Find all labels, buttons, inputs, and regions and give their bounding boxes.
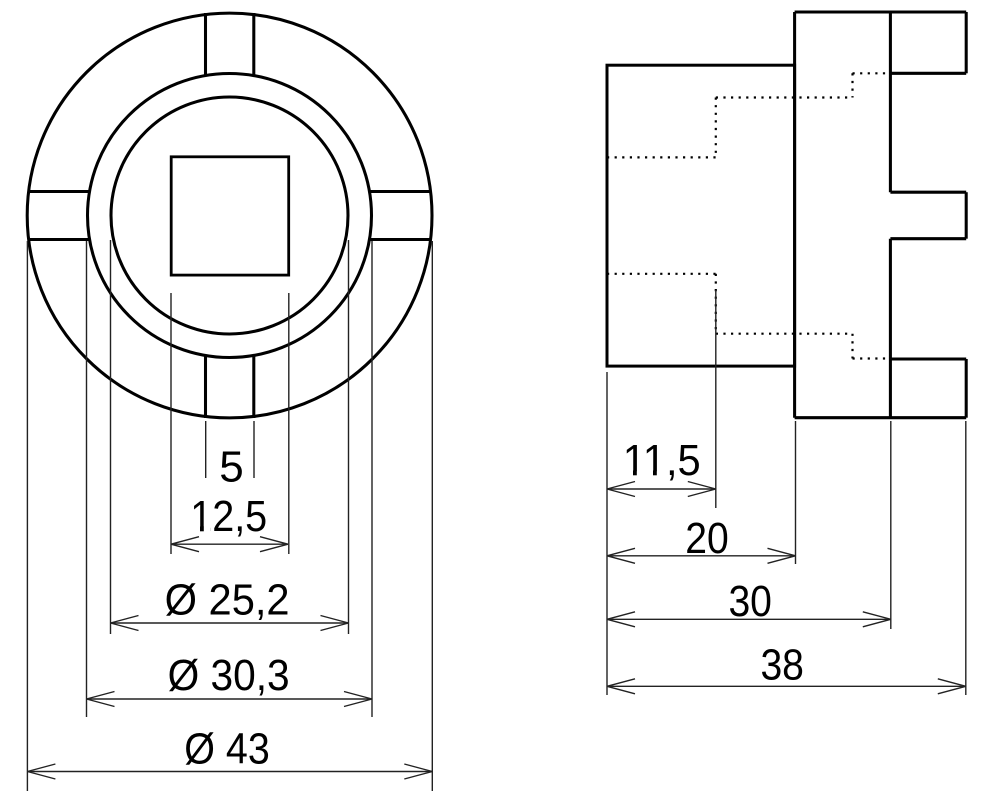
svg-text:Ø 43: Ø 43 (184, 725, 270, 774)
svg-text:5: 5 (219, 443, 243, 492)
svg-text:20: 20 (685, 514, 729, 563)
svg-text:30: 30 (728, 577, 772, 626)
svg-text:12,5: 12,5 (190, 492, 267, 541)
svg-text:Ø 30,3: Ø 30,3 (168, 651, 290, 700)
svg-text:11,5: 11,5 (623, 436, 701, 485)
svg-text:38: 38 (760, 641, 804, 690)
svg-text:Ø 25,2: Ø 25,2 (165, 576, 290, 625)
